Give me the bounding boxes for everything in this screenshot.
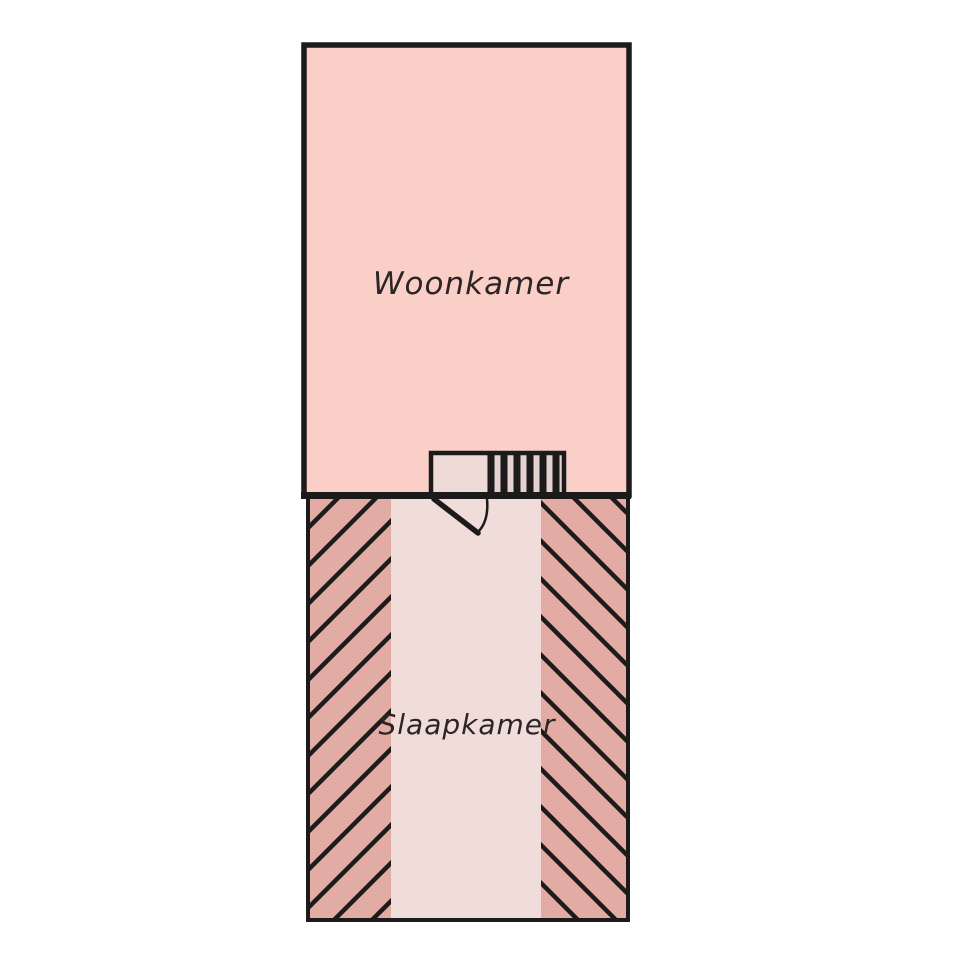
woonkamer-label: Woonkamer xyxy=(373,266,570,302)
room-slaapkamer: Slaapkamer xyxy=(308,496,628,920)
floor-plan-drawing: Slaapkamer Woonkamer xyxy=(0,0,960,960)
staircase xyxy=(431,453,564,496)
slaapkamer-label: Slaapkamer xyxy=(378,708,556,741)
stair-landing xyxy=(431,453,487,496)
stair-tread-area xyxy=(487,453,564,496)
room-woonkamer: Woonkamer xyxy=(304,45,629,495)
floor-plan-canvas: Slaapkamer Woonkamer xyxy=(0,0,960,960)
